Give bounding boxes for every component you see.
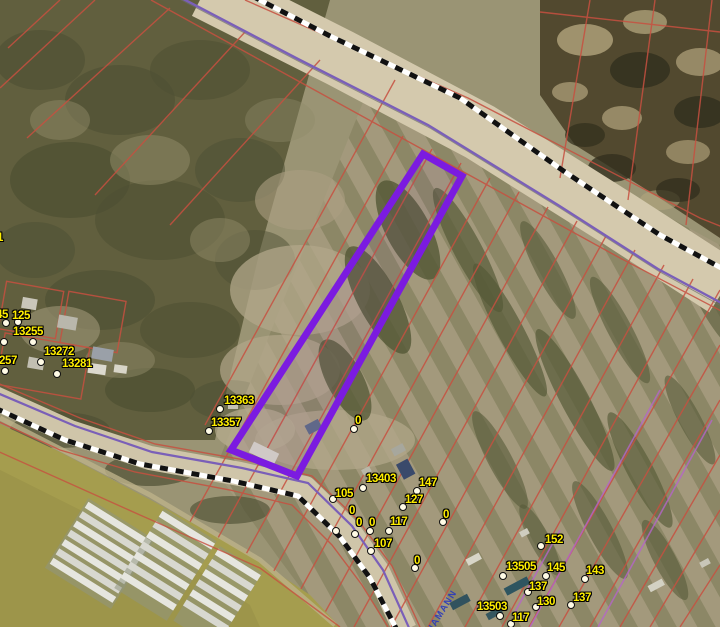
aerial-map <box>0 0 720 627</box>
map-viewport[interactable]: 1451253132553257132721328113363133570134… <box>0 0 720 627</box>
